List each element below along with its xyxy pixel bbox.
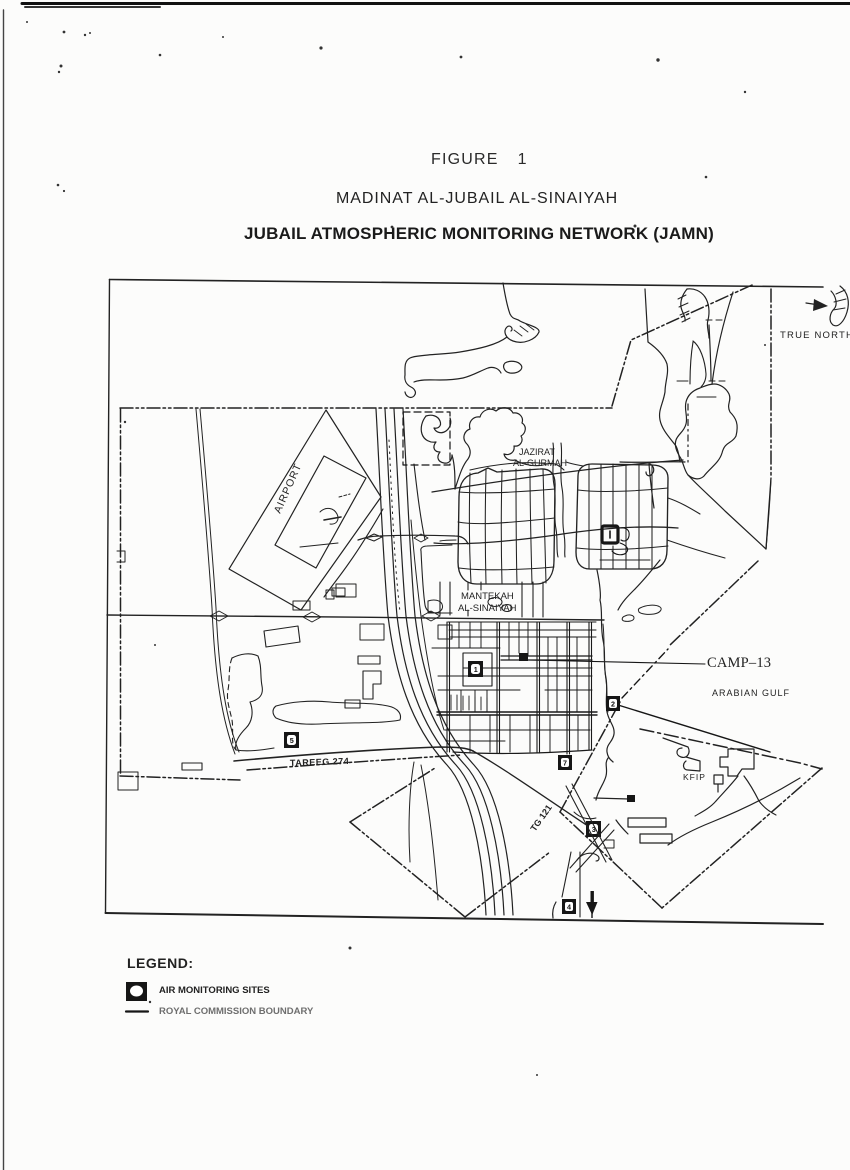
- svg-text:5: 5: [290, 736, 294, 745]
- svg-text:JAZIRAT: JAZIRAT: [519, 447, 555, 457]
- svg-text:TRUE NORTH: TRUE NORTH: [780, 330, 850, 341]
- svg-text:2: 2: [611, 700, 615, 709]
- svg-text:KFIP: KFIP: [683, 772, 706, 782]
- svg-text:TAREEG 274: TAREEG 274: [290, 756, 350, 768]
- svg-text:ARABIAN GULF: ARABIAN GULF: [712, 688, 790, 698]
- svg-text:MANTEKAH: MANTEKAH: [461, 591, 514, 602]
- svg-text:AIRPORT: AIRPORT: [272, 461, 305, 515]
- svg-text:TG 121: TG 121: [528, 803, 553, 833]
- svg-text:1: 1: [474, 665, 478, 674]
- svg-text:7: 7: [563, 759, 567, 768]
- svg-text:CAMP–13: CAMP–13: [707, 655, 771, 671]
- svg-text:4: 4: [567, 903, 571, 912]
